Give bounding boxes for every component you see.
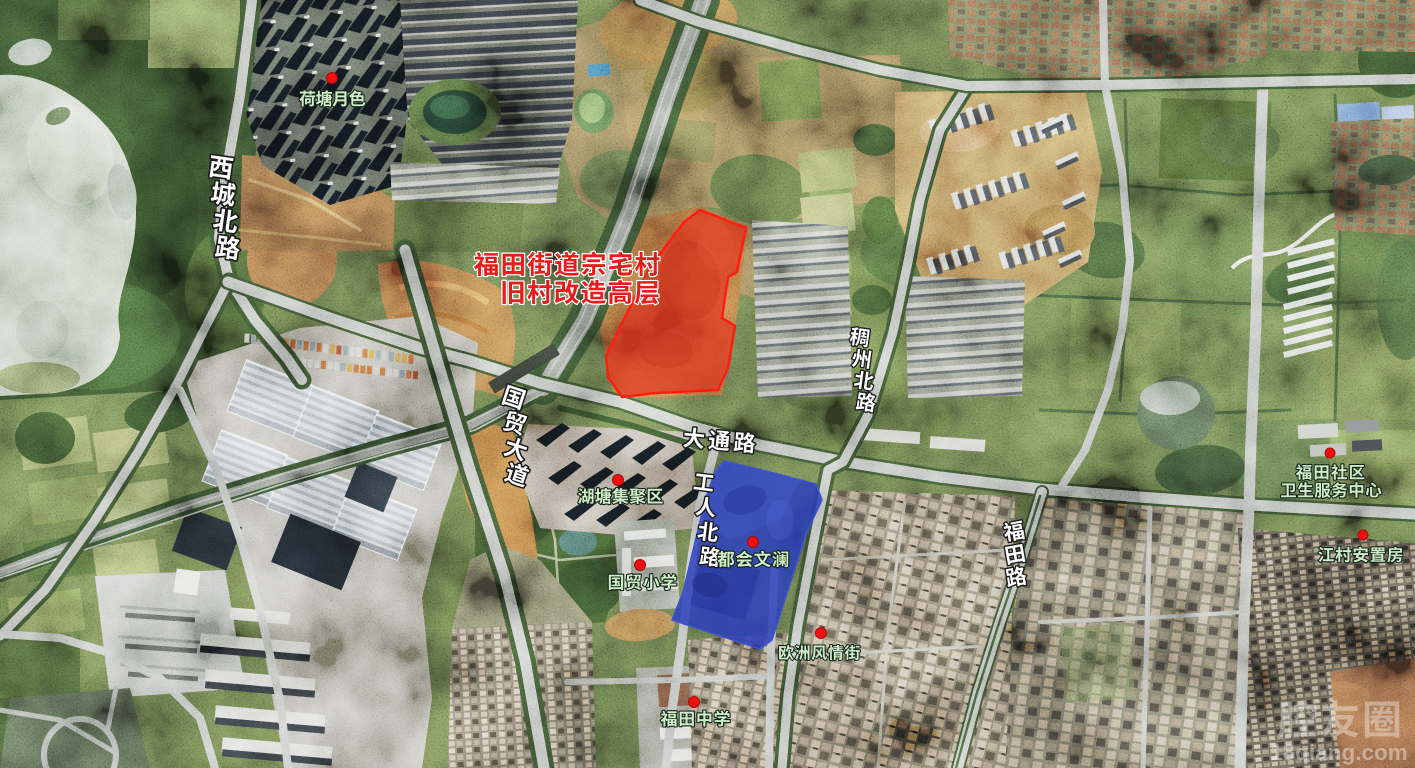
svg-text:18qiang.com: 18qiang.com — [1270, 740, 1408, 765]
